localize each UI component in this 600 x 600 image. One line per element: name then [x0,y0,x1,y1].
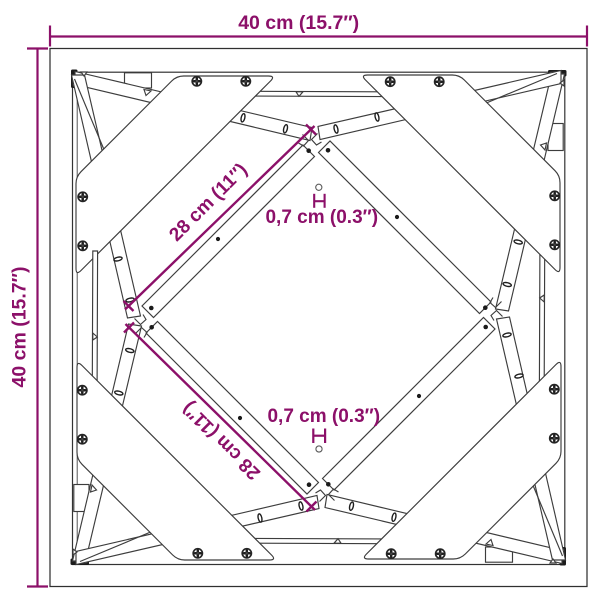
svg-text:0,7 cm (0.3″): 0,7 cm (0.3″) [265,207,378,228]
svg-text:40 cm (15.7″): 40 cm (15.7″) [9,267,31,388]
svg-text:40 cm (15.7″): 40 cm (15.7″) [238,12,359,34]
svg-text:0,7 cm (0.3″): 0,7 cm (0.3″) [267,406,380,427]
